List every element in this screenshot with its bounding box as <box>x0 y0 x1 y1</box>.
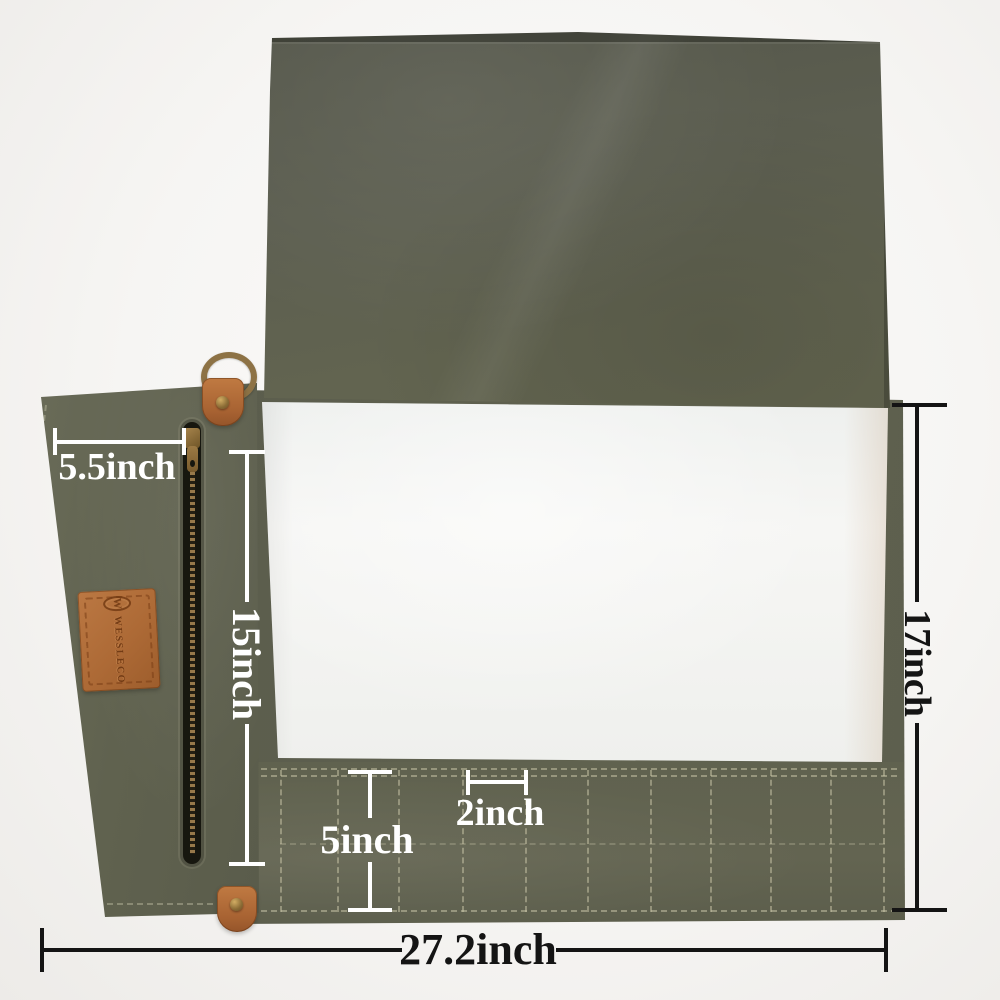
top-flap-panel <box>258 30 893 412</box>
brand-emblem-icon: W <box>103 595 132 611</box>
leather-logo-patch: W WESSLECO <box>77 588 160 692</box>
product-photo: W WESSLECO 5.5inch 15inch 17inch 2inch 5… <box>0 0 1000 1000</box>
dim-open-height-tick <box>892 908 947 912</box>
slot-stitch-line <box>830 770 832 912</box>
dim-panel-length-line <box>245 452 249 602</box>
dim-total-width-label: 27.2inch <box>398 928 558 972</box>
slot-stitch-line <box>587 770 589 912</box>
strip-top-stitch <box>241 768 897 770</box>
dim-slot-depth-line <box>368 862 372 910</box>
dim-total-width-line <box>44 948 402 952</box>
dim-slot-width-label: 2inch <box>446 794 554 832</box>
rivet-icon <box>230 898 243 911</box>
dim-panel-length-tick <box>229 862 265 866</box>
rivet-icon <box>216 396 229 409</box>
dim-panel-length-label: 15inch <box>221 604 273 722</box>
dim-open-height-line <box>915 405 919 602</box>
dim-open-height-line <box>915 723 919 910</box>
brand-logo-text: WESSLECO <box>112 616 127 685</box>
dim-total-width-line <box>556 948 886 952</box>
slot-stitch-line <box>710 770 712 912</box>
dim-slot-depth-line <box>368 772 372 818</box>
slot-stitch-line <box>883 770 885 912</box>
slot-stitch-line <box>770 770 772 912</box>
dim-zip-pocket-label: 5.5inch <box>48 448 186 486</box>
slot-stitch-line <box>650 770 652 912</box>
zipper-teeth <box>190 430 195 854</box>
zipper-slider <box>184 428 200 448</box>
dim-slot-depth-label: 5inch <box>312 820 422 860</box>
snap-leather-tab <box>217 886 257 932</box>
dim-slot-depth-tick <box>348 908 392 912</box>
dim-slot-width-line <box>466 780 528 784</box>
dim-zip-pocket-line <box>55 440 185 444</box>
dim-total-width-tick <box>884 928 888 972</box>
brand-emblem-letter: W <box>111 598 124 610</box>
brand-logo: W WESSLECO <box>67 598 171 681</box>
d-ring-leather-tab <box>202 378 244 426</box>
strip-top-stitch <box>241 775 897 777</box>
dim-open-height-tick <box>892 403 947 407</box>
dim-open-height-label: 17inch <box>891 604 943 722</box>
strip-bottom-stitch <box>241 910 897 912</box>
inner-lining <box>262 402 888 762</box>
dim-panel-length-line <box>245 724 249 864</box>
slot-stitch-line <box>280 770 282 912</box>
flap-hem <box>258 30 893 412</box>
zipper-pull <box>187 446 198 472</box>
wing-edge-stitch <box>0 405 47 902</box>
